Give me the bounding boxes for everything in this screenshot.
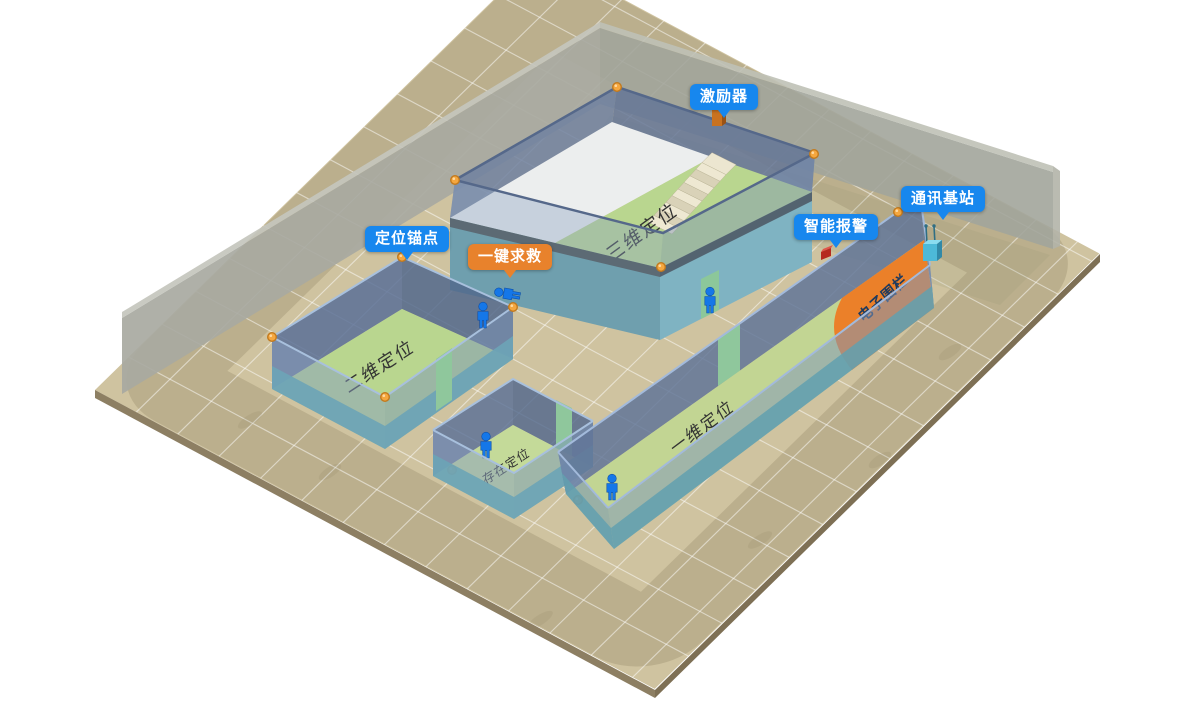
anchor-icon (508, 302, 518, 312)
anchor-icon (267, 332, 277, 342)
anchor-icon (612, 82, 622, 92)
callout-comm-base: 通讯基站 (901, 186, 985, 212)
positioning-system-scene: 三维定位 二维定位 (0, 0, 1200, 723)
back-wall-end-cap (1053, 166, 1060, 249)
callout-exciter: 激励器 (690, 84, 758, 110)
anchor-icon (656, 262, 666, 272)
anchor-icon (380, 392, 390, 402)
callout-sos: 一键求救 (468, 244, 552, 270)
callout-sos-label: 一键求救 (478, 247, 542, 265)
pen2d-door (436, 348, 452, 411)
callout-anchor-label: 定位锚点 (375, 229, 439, 247)
callout-smart-alarm-label: 智能报警 (804, 217, 868, 235)
anchor-icon (450, 175, 460, 185)
scene-canvas: 三维定位 二维定位 (0, 0, 1200, 723)
callout-smart-alarm: 智能报警 (794, 214, 878, 240)
anchor-icon (809, 149, 819, 159)
callout-exciter-label: 激励器 (700, 87, 748, 105)
callout-anchor: 定位锚点 (365, 226, 449, 252)
callout-comm-base-label: 通讯基站 (911, 189, 975, 207)
